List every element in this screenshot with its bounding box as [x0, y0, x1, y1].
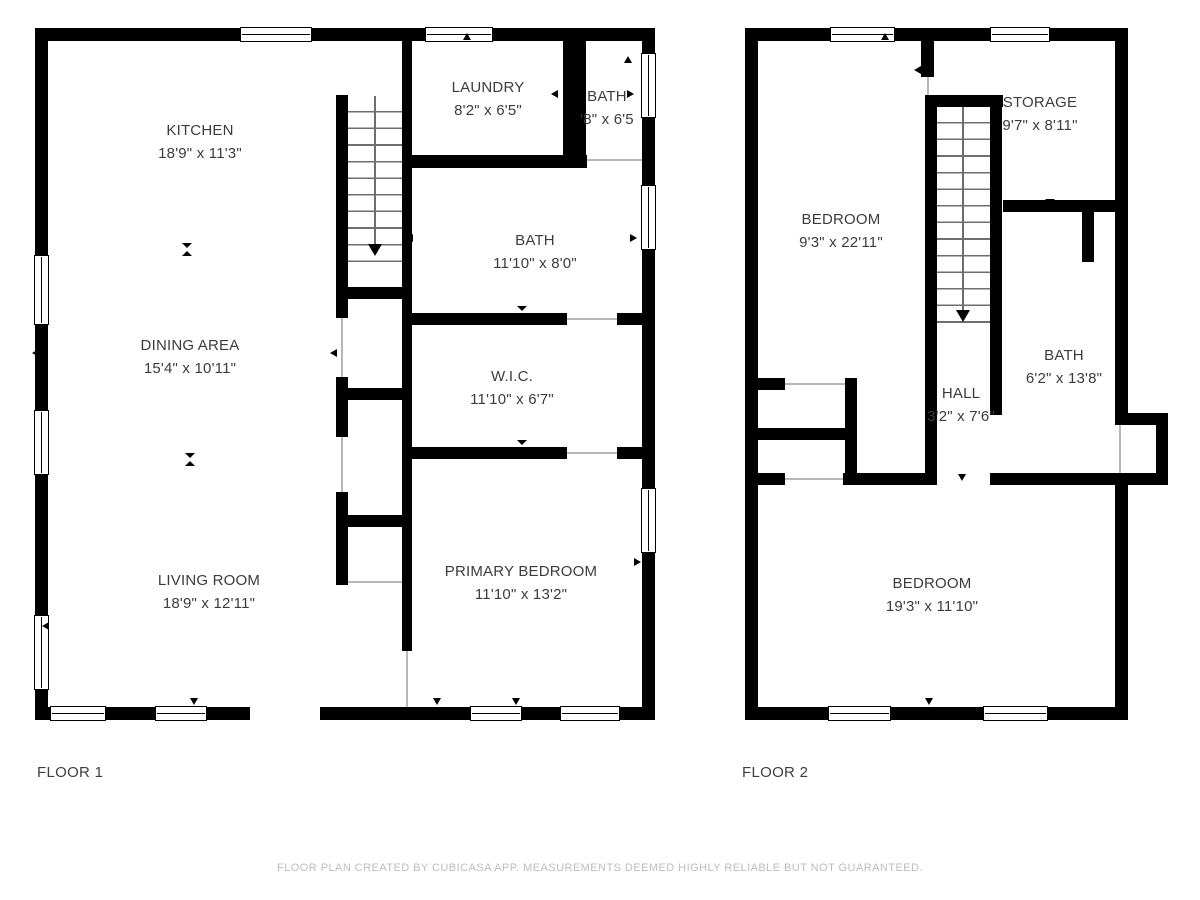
window-icon [641, 185, 656, 250]
room-dims: '8" x 6'5 [580, 108, 634, 131]
room-name: BATH [580, 85, 634, 108]
door-marker-icon [330, 349, 337, 357]
floor-2-label: FLOOR 2 [742, 764, 808, 781]
wall-segment [336, 287, 412, 299]
room-name: KITCHEN [158, 119, 242, 142]
wall-segment [1003, 200, 1115, 212]
window-icon [560, 706, 620, 721]
door-marker-icon [551, 90, 558, 98]
door-marker-icon [190, 698, 198, 705]
door-marker-icon [433, 698, 441, 705]
room-dims: 11'10" x 13'2" [445, 583, 597, 606]
door-opening-line [567, 452, 617, 454]
door-marker-icon [914, 66, 921, 74]
wall-segment [758, 428, 845, 440]
wall-segment [617, 447, 642, 459]
wall-segment [1115, 28, 1128, 425]
room-name: HALL [927, 382, 995, 405]
door-marker-icon [512, 698, 520, 705]
room-label-bath-upstairs: BATH 6'2" x 13'8" [1026, 344, 1102, 390]
window-icon [470, 706, 522, 721]
wall-segment [745, 707, 1128, 720]
door-marker-icon [463, 33, 471, 40]
room-name: BEDROOM [886, 572, 978, 595]
wall-segment [1082, 212, 1094, 262]
window-icon [155, 706, 207, 721]
window-icon [983, 706, 1048, 721]
wall-segment [745, 473, 785, 485]
window-icon [34, 410, 49, 475]
opening-marker-icon [1045, 199, 1055, 212]
door-marker-icon [630, 234, 637, 242]
window-icon [641, 53, 656, 118]
room-label-hall: HALL 3'2" x 7'6" [927, 382, 995, 428]
wall-segment [402, 313, 567, 325]
wall-segment [402, 41, 412, 651]
room-dims: 9'3" x 22'11" [799, 231, 883, 254]
opening-marker-icon [182, 243, 192, 256]
window-icon [641, 488, 656, 553]
window-icon [34, 255, 49, 325]
room-dims: 3'2" x 7'6" [927, 405, 995, 428]
wall-segment [745, 28, 1128, 41]
wall-segment [402, 447, 567, 459]
door-marker-icon [42, 622, 49, 630]
window-icon [50, 706, 106, 721]
room-dims: 11'10" x 8'0" [493, 252, 577, 275]
door-marker-icon [747, 588, 754, 596]
room-name: DINING AREA [141, 334, 240, 357]
door-marker-icon [624, 56, 632, 63]
window-icon [425, 27, 493, 42]
door-marker-icon [881, 33, 889, 40]
room-label-dining-area: DINING AREA 15'4" x 10'11" [141, 334, 240, 380]
room-label-primary-bedroom: PRIMARY BEDROOM 11'10" x 13'2" [445, 560, 597, 606]
door-marker-icon [1116, 588, 1123, 596]
footer-disclaimer: FLOOR PLAN CREATED BY CUBICASA APP. MEAS… [0, 862, 1200, 874]
room-name: W.I.C. [470, 365, 554, 388]
room-dims: 19'3" x 11'10" [886, 595, 978, 618]
wall-segment [35, 28, 655, 41]
room-name: BATH [1026, 344, 1102, 367]
room-name: BATH [493, 229, 577, 252]
room-dims: 15'4" x 10'11" [141, 357, 240, 380]
room-label-bedroom-1: BEDROOM 9'3" x 22'11" [799, 208, 883, 254]
door-marker-icon [1116, 66, 1123, 74]
door-marker-icon [634, 558, 641, 566]
floor-1-label: FLOOR 1 [37, 764, 103, 781]
door-opening-line [1119, 425, 1121, 473]
wall-segment [745, 378, 785, 390]
room-dims: 8'2" x 6'5" [452, 99, 525, 122]
room-label-kitchen: KITCHEN 18'9" x 11'3" [158, 119, 242, 165]
room-label-bath-small: BATH '8" x 6'5 [580, 85, 634, 131]
wall-segment [745, 28, 758, 720]
door-marker-icon [884, 474, 892, 481]
room-name: LIVING ROOM [158, 569, 260, 592]
window-icon [240, 27, 312, 42]
room-label-living-room: LIVING ROOM 18'9" x 12'11" [158, 569, 260, 615]
window-icon [828, 706, 891, 721]
door-opening-line [341, 437, 343, 492]
door-marker-icon [41, 62, 48, 70]
wall-segment [617, 313, 642, 325]
wall-segment [845, 378, 857, 485]
wall-segment [336, 299, 348, 318]
window-icon [990, 27, 1050, 42]
wall-segment [402, 155, 587, 168]
door-marker-icon [180, 33, 188, 40]
door-opening-line [785, 478, 845, 480]
door-marker-icon [1116, 355, 1123, 363]
room-dims: 6'2" x 13'8" [1026, 367, 1102, 390]
room-label-laundry: LAUNDRY 8'2" x 6'5" [452, 76, 525, 122]
room-name: BEDROOM [799, 208, 883, 231]
door-marker-icon [32, 349, 39, 357]
opening-marker-icon [185, 453, 195, 466]
door-opening-line [406, 651, 408, 707]
door-opening-line [567, 318, 617, 320]
door-marker-icon [747, 203, 754, 211]
door-opening-line [341, 318, 343, 377]
stair-direction-icon [368, 244, 382, 256]
room-dims: 18'9" x 11'3" [158, 142, 242, 165]
door-opening-line [348, 581, 402, 583]
opening-marker-icon [517, 440, 527, 453]
room-dims: 9'7" x 8'11" [1002, 114, 1077, 137]
wall-segment [336, 95, 348, 299]
door-marker-icon [1049, 33, 1057, 40]
room-label-bath-main: BATH 11'10" x 8'0" [493, 229, 577, 275]
door-opening-line [785, 383, 845, 385]
room-label-storage: STORAGE 9'7" x 8'11" [1002, 91, 1077, 137]
stair-direction-icon [374, 96, 376, 244]
door-opening-line [927, 77, 929, 95]
wall-segment [336, 377, 348, 437]
door-marker-icon [958, 474, 966, 481]
door-marker-icon [991, 364, 998, 372]
opening-marker-icon [517, 306, 527, 319]
wall-segment [1115, 473, 1128, 720]
room-name: PRIMARY BEDROOM [445, 560, 597, 583]
door-marker-icon [925, 698, 933, 705]
floor-plan-canvas: KITCHEN 18'9" x 11'3" DINING AREA 15'4" … [0, 0, 1200, 900]
room-name: LAUNDRY [452, 76, 525, 99]
door-marker-icon [406, 234, 413, 242]
room-dims: 11'10" x 6'7" [470, 388, 554, 411]
door-opening-line [587, 159, 642, 161]
wall-segment [921, 41, 934, 77]
stair-direction-icon [962, 107, 964, 310]
wall-segment [336, 492, 348, 585]
room-label-bedroom-2: BEDROOM 19'3" x 11'10" [886, 572, 978, 618]
stair-direction-icon [956, 310, 970, 322]
wall-segment [1115, 473, 1168, 485]
room-name: STORAGE [1002, 91, 1077, 114]
wall-segment [642, 28, 655, 720]
door-marker-icon [1049, 474, 1057, 481]
room-label-wic: W.I.C. 11'10" x 6'7" [470, 365, 554, 411]
room-dims: 18'9" x 12'11" [158, 592, 260, 615]
